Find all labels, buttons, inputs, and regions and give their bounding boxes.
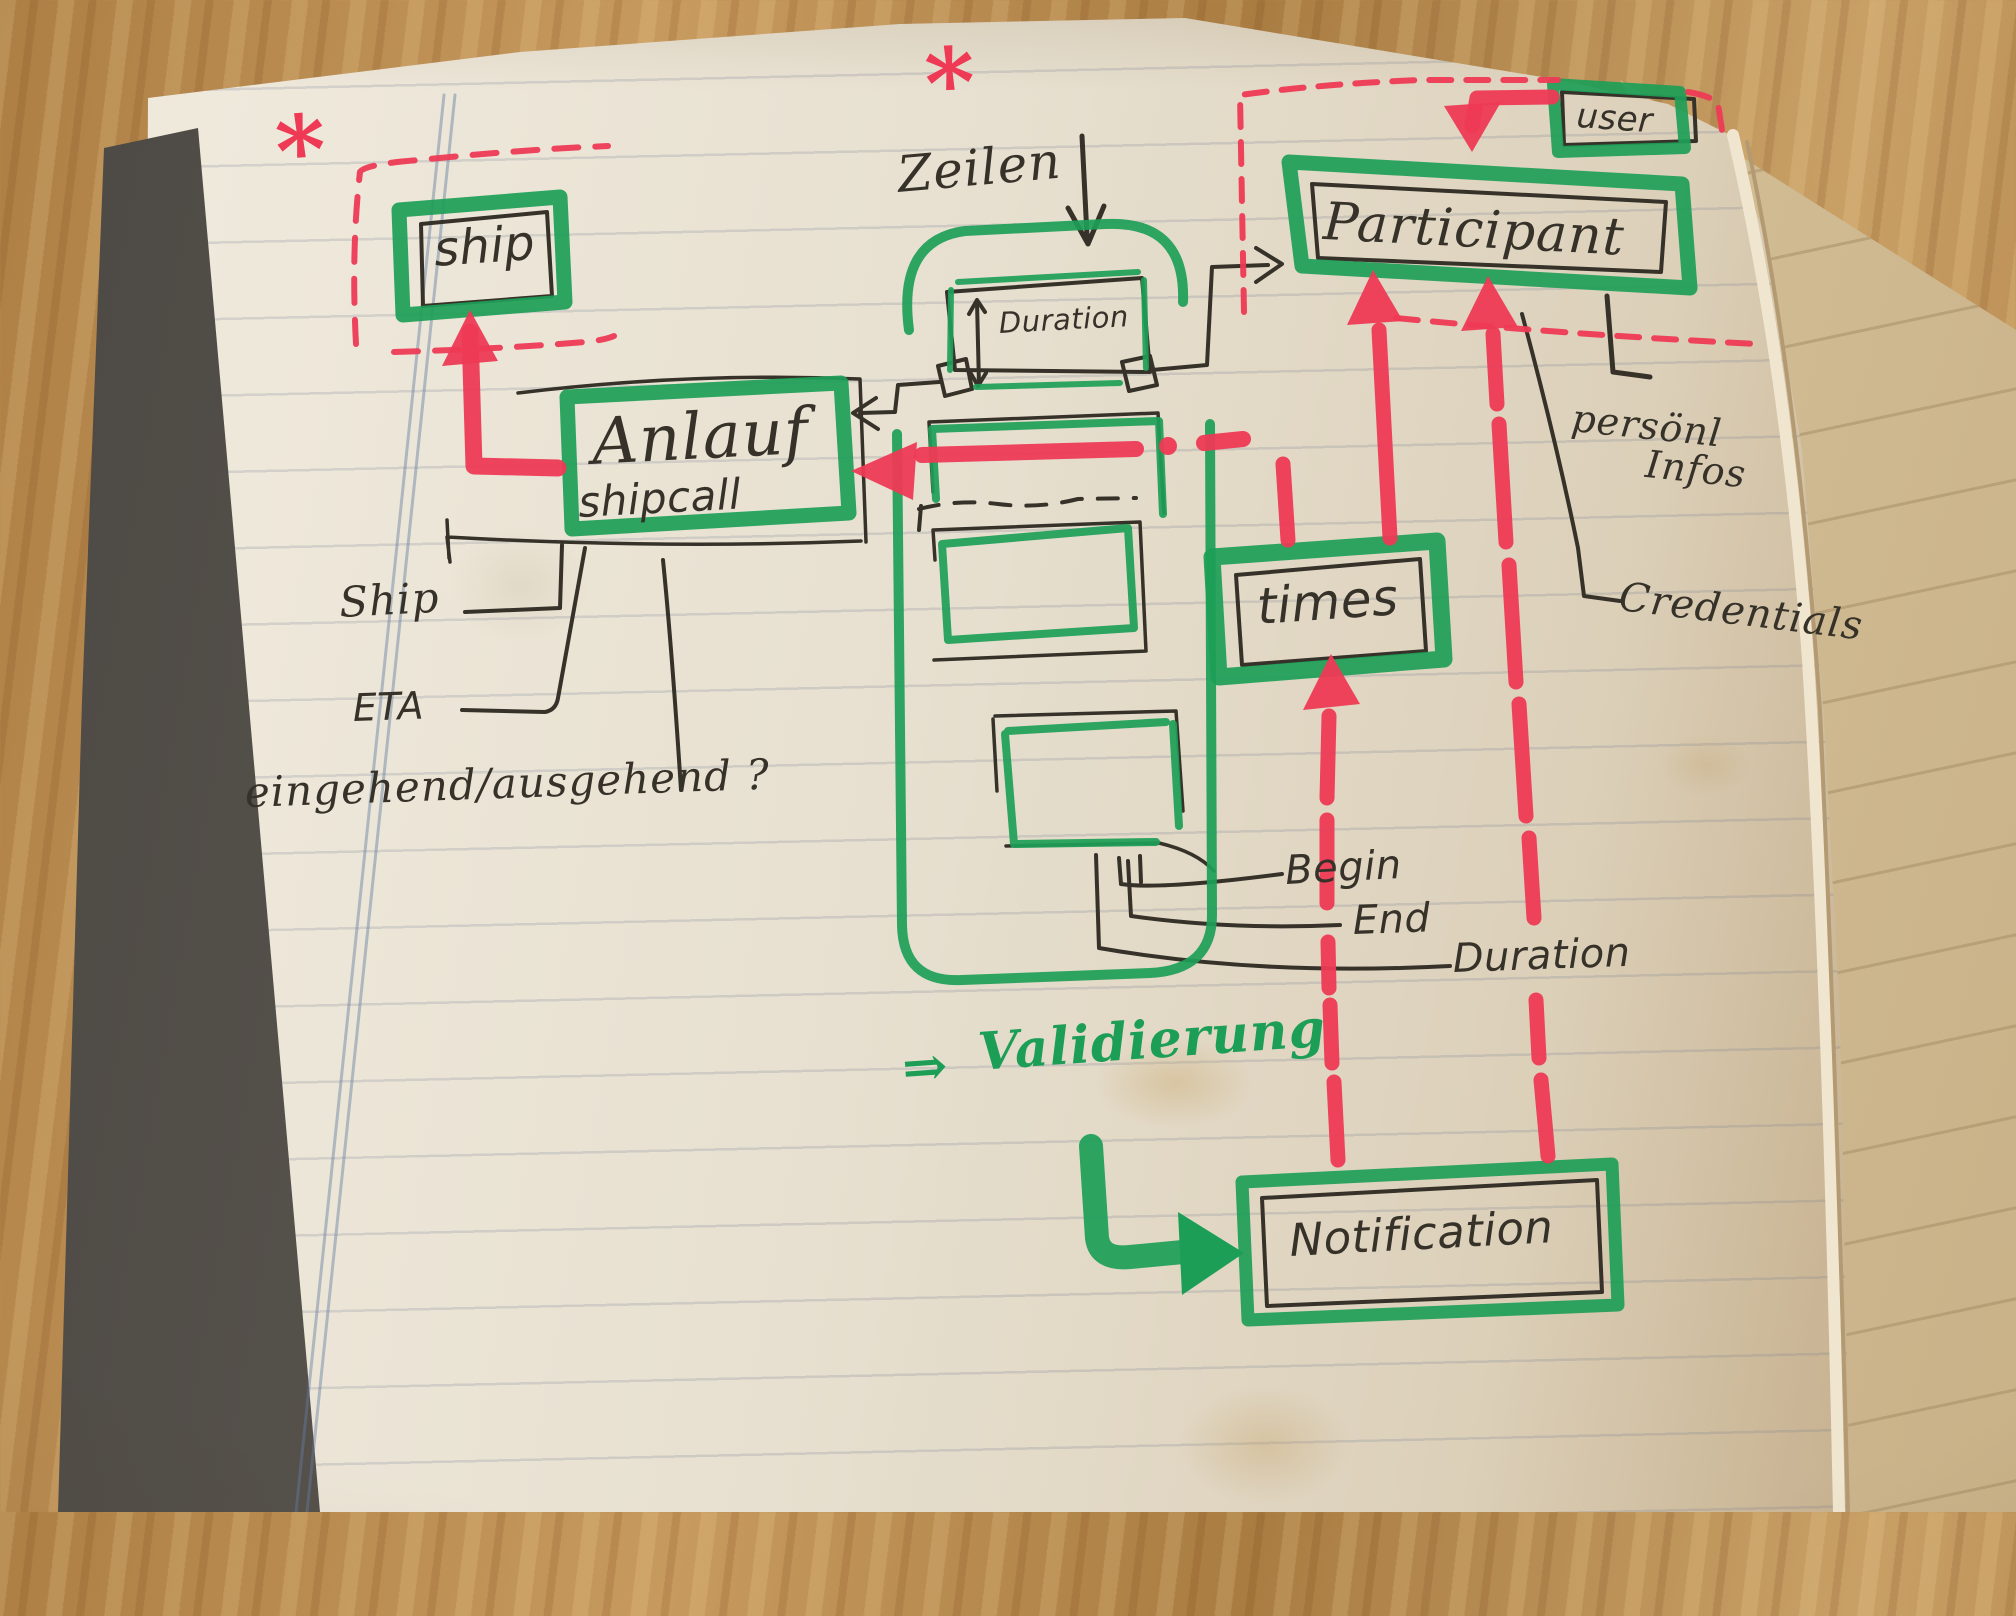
arrow-times-to-participant (1283, 330, 1390, 540)
row2-box-trace (942, 528, 1134, 640)
row1-box-trace (932, 421, 1163, 514)
arrow-duration-to-participant (1152, 248, 1282, 370)
validierung-to-notification-arrow (1091, 1146, 1183, 1257)
dashed-arrow-dot (1159, 437, 1177, 455)
arrow-duration-to-anlauf (853, 382, 939, 429)
arrow-notification-to-participant (1493, 334, 1548, 1156)
eta-connector (462, 548, 585, 712)
anlauf-box (567, 383, 849, 529)
times-box-inner (1236, 559, 1426, 665)
credentials-connector (1522, 314, 1620, 601)
ship-attr-connector (465, 545, 562, 612)
row1-divider-tick (919, 506, 921, 530)
notification-box-inner (1262, 1180, 1602, 1306)
green-marker-strokes (399, 84, 1690, 1320)
duration-attr-connector (1096, 855, 1450, 969)
duration-updown-arrow (969, 300, 986, 386)
diagram-strokes (0, 0, 2016, 1512)
red-arrowheads (442, 102, 1518, 710)
notebook-photo: * * ship Anlauf shipcall Zeilen Duration… (0, 0, 2016, 1512)
row3-box-trace (1005, 722, 1179, 844)
end-connector (1128, 861, 1340, 926)
participant-box-inner (1312, 184, 1666, 272)
inout-connector (663, 560, 681, 790)
green-arrowhead (1178, 1212, 1244, 1295)
arrowhead-into-participant-top (1444, 102, 1501, 152)
row1-divider-dashed (919, 498, 1136, 509)
arrow-notification-to-times (1327, 716, 1338, 1160)
arrow-row1-to-anlauf (922, 439, 1243, 455)
